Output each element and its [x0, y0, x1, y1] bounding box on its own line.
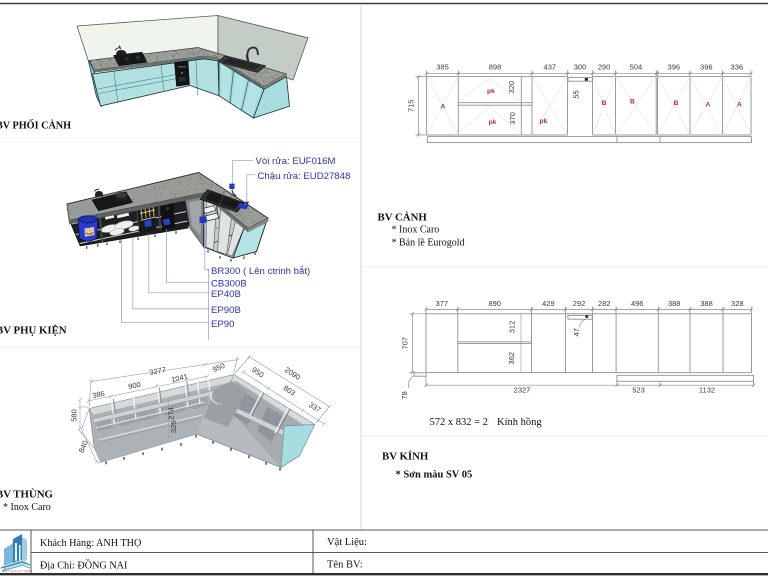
svg-text:290: 290 [598, 63, 611, 72]
svg-text:pk: pk [540, 118, 548, 125]
svg-text:BV PHỐI CẢNH: BV PHỐI CẢNH [0, 119, 71, 132]
svg-text:292: 292 [573, 299, 586, 308]
svg-text:326: 326 [169, 421, 178, 434]
svg-text:370: 370 [508, 112, 517, 125]
svg-text:Vòi rửa: EUF016M: Vòi rửa: EUF016M [256, 156, 336, 167]
svg-text:Tên BV:: Tên BV: [327, 560, 363, 571]
svg-text:* Inox Caro: * Inox Caro [3, 502, 51, 513]
svg-text:EP40B: EP40B [211, 289, 241, 300]
svg-text:396: 396 [700, 63, 713, 72]
svg-text:78: 78 [400, 391, 409, 399]
svg-text:EP90: EP90 [211, 319, 234, 330]
svg-text:1132: 1132 [699, 386, 715, 395]
svg-text:388: 388 [700, 299, 713, 308]
svg-text:336: 336 [731, 63, 744, 72]
svg-text:282: 282 [598, 299, 611, 308]
svg-text:55: 55 [571, 90, 580, 98]
svg-text:496: 496 [631, 299, 644, 308]
svg-text:pk: pk [489, 119, 497, 126]
svg-text:707: 707 [401, 337, 410, 350]
svg-text:A: A [706, 101, 711, 108]
svg-text:504: 504 [630, 63, 643, 72]
svg-text:377: 377 [436, 299, 449, 308]
svg-text:A: A [737, 101, 742, 108]
svg-text:BV THÙNG: BV THÙNG [0, 489, 54, 501]
svg-text:2327: 2327 [514, 386, 531, 395]
svg-text:EP90B: EP90B [211, 305, 241, 316]
svg-text:B: B [630, 99, 635, 106]
svg-text:385: 385 [436, 63, 449, 72]
svg-text:300: 300 [574, 63, 587, 72]
svg-text:B: B [674, 100, 679, 107]
svg-text:BV KÍNH: BV KÍNH [382, 451, 429, 463]
svg-text:580: 580 [69, 409, 78, 422]
svg-text:* Bản lề Eurogold: * Bản lề Eurogold [392, 238, 465, 249]
svg-text:A: A [441, 104, 446, 111]
svg-text:BEST QUALITY HOME: BEST QUALITY HOME [2, 569, 32, 573]
svg-text:Khách Hàng: ANH THỌ: Khách Hàng: ANH THỌ [40, 538, 141, 549]
svg-text:47: 47 [572, 328, 581, 336]
svg-text:429: 429 [542, 299, 555, 308]
svg-text:BV PHỤ KIỆN: BV PHỤ KIỆN [0, 324, 67, 337]
svg-text:Địa Chỉ: ĐỒNG NAI: Địa Chỉ: ĐỒNG NAI [40, 559, 128, 572]
svg-text:B: B [602, 100, 607, 107]
svg-text:274: 274 [166, 407, 175, 420]
svg-text:312: 312 [507, 321, 516, 334]
svg-text:320: 320 [507, 81, 516, 94]
svg-text:388: 388 [668, 299, 681, 308]
svg-text:pk: pk [487, 88, 495, 95]
svg-text:BR300 ( Lên ctrinh bắt): BR300 ( Lên ctrinh bắt) [211, 266, 310, 277]
svg-text:328: 328 [731, 299, 744, 308]
svg-text:523: 523 [632, 386, 645, 395]
svg-text:CB300B: CB300B [211, 279, 247, 290]
svg-text:* Inox Caro: * Inox Caro [392, 225, 440, 236]
svg-text:890: 890 [488, 299, 501, 308]
svg-text:Kính hồng: Kính hồng [497, 417, 542, 428]
svg-text:Chậu rửa: EUD27848: Chậu rửa: EUD27848 [258, 171, 351, 182]
svg-text:396: 396 [668, 63, 681, 72]
svg-text:Vật Liệu:: Vật Liệu: [327, 537, 367, 548]
svg-text:BV CẢNH: BV CẢNH [378, 212, 428, 224]
svg-text:437: 437 [544, 63, 557, 72]
svg-text:* Sơn màu SV 05: * Sơn màu SV 05 [396, 470, 473, 481]
svg-text:362: 362 [507, 352, 516, 365]
svg-text:715: 715 [407, 100, 416, 113]
svg-text:572 x 832 = 2: 572 x 832 = 2 [430, 417, 488, 428]
svg-text:898: 898 [489, 63, 502, 72]
